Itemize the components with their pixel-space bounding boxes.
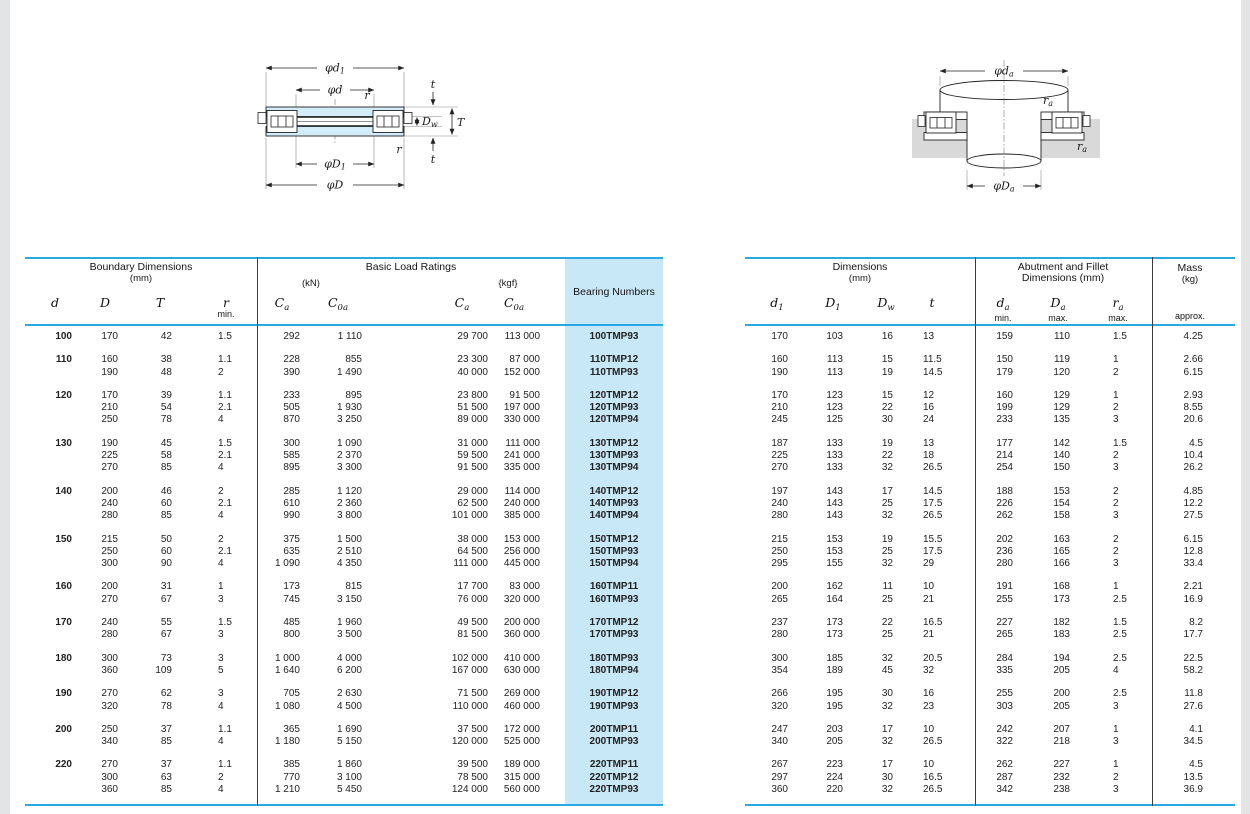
- table-cell: 236: [975, 546, 1015, 558]
- table-cell: 232: [1015, 772, 1072, 784]
- table-cell: 360: [745, 784, 790, 796]
- table-cell: 15.5: [895, 534, 975, 546]
- dim-label-t-top: t: [431, 78, 436, 91]
- table-cell: 143: [790, 498, 845, 510]
- table-cell: 91 500: [362, 462, 488, 474]
- table-group: 2371732216.52271821.58.22801732521265183…: [745, 617, 1235, 642]
- table-cell: 225: [75, 450, 120, 462]
- table-cell: 895: [300, 390, 362, 402]
- table-row: 1904823901 49040 000152 000110TMP93: [25, 367, 663, 379]
- table-cell: 4: [175, 414, 257, 426]
- table-cell: 4: [175, 736, 257, 748]
- table-row: 2371732216.52271821.58.2: [745, 617, 1235, 629]
- table-cell: 19: [845, 367, 895, 379]
- table-cell: 32: [845, 784, 895, 796]
- table-cell: 190TMP12: [540, 688, 663, 700]
- table-cell: 320: [745, 701, 790, 713]
- table-cell: 130TMP93: [540, 450, 663, 462]
- table-cell: 27.5: [1152, 510, 1235, 522]
- table-cell: 2: [1072, 367, 1152, 379]
- table-cell: 200: [75, 581, 120, 593]
- table-group: 120170391.123389523 80091 500120TMP12210…: [25, 390, 663, 427]
- table-cell: 170TMP93: [540, 629, 663, 641]
- table-cell: 2 510: [300, 546, 362, 558]
- table-cell: 4 350: [300, 558, 362, 570]
- table-cell: 18: [895, 450, 975, 462]
- table-cell: 218: [1015, 736, 1072, 748]
- table-cell: 154: [1015, 498, 1072, 510]
- table-cell: 385 000: [488, 510, 540, 522]
- table-cell: 705: [257, 688, 300, 700]
- table-cell: 100TMP93: [540, 331, 663, 343]
- table-cell: 2: [1072, 534, 1152, 546]
- table-cell: 4.5: [1152, 438, 1235, 450]
- table-cell: 245: [745, 414, 790, 426]
- table-cell: 183: [1015, 629, 1072, 641]
- table-cell: 800: [257, 629, 300, 641]
- table-cell: 150TMP94: [540, 558, 663, 570]
- table-cell: 330 000: [488, 414, 540, 426]
- table-cell: [25, 701, 75, 713]
- table-cell: 155: [790, 558, 845, 570]
- table-cell: 160: [745, 354, 790, 366]
- table-cell: 3: [175, 688, 257, 700]
- table-cell: 78 500: [362, 772, 488, 784]
- table-cell: 340: [745, 736, 790, 748]
- table-cell: 23 800: [362, 390, 488, 402]
- table-cell: 29: [895, 558, 975, 570]
- table-cell: 32: [845, 653, 895, 665]
- table-cell: 200: [1015, 688, 1072, 700]
- table-cell: 71 500: [362, 688, 488, 700]
- table-cell: 190: [75, 438, 120, 450]
- table-cell: 124 000: [362, 784, 488, 796]
- table-group: 26619530162552002.511.832019532233032053…: [745, 688, 1235, 713]
- table-cell: 120: [1015, 367, 1072, 379]
- table-row: 1901131914.517912026.15: [745, 367, 1235, 379]
- abutment-header-line2: Dimensions (mm): [1022, 273, 1104, 284]
- table-group: 1502155023751 50038 000153 000150TMP1225…: [25, 534, 663, 571]
- table-cell: 295: [745, 558, 790, 570]
- table-cell: 130TMP94: [540, 462, 663, 474]
- table-cell: 215: [745, 534, 790, 546]
- table-cell: 4: [175, 784, 257, 796]
- table-cell: 37: [120, 724, 175, 736]
- table-cell: 233: [257, 390, 300, 402]
- table-cell: 85: [120, 462, 175, 474]
- table-cell: 4.1: [1152, 724, 1235, 736]
- table-cell: 173: [790, 629, 845, 641]
- table-cell: 170TMP12: [540, 617, 663, 629]
- table-row: 3541894532335205458.2: [745, 665, 1235, 677]
- table-cell: 120TMP94: [540, 414, 663, 426]
- dimensions-header: Dimensions: [833, 262, 888, 273]
- table-cell: 143: [790, 510, 845, 522]
- table-cell: 227: [1015, 759, 1072, 771]
- table-cell: 103: [790, 331, 845, 343]
- table-row: 3001853220.52841942.522.5: [745, 653, 1235, 665]
- table-cell: 20.6: [1152, 414, 1235, 426]
- table-cell: 335: [975, 665, 1015, 677]
- table-group: 2151531915.520216326.152501532517.523616…: [745, 534, 1235, 571]
- table-cell: 3 800: [300, 510, 362, 522]
- table-cell: 59 500: [362, 450, 488, 462]
- table-row: 110160381.122885523 30087 000110TMP12: [25, 354, 663, 366]
- table-cell: 3: [1072, 736, 1152, 748]
- table-cell: 30: [845, 414, 895, 426]
- table-cell: 1.5: [175, 438, 257, 450]
- right-table-body: 17010316131591101.54.251601131511.515011…: [745, 331, 1235, 796]
- dim-label-Dw: Dw: [421, 115, 438, 129]
- table-cell: 37 500: [362, 724, 488, 736]
- table-cell: 12.8: [1152, 546, 1235, 558]
- table-cell: 101 000: [362, 510, 488, 522]
- table-row: 250602.16352 51064 500256 000150TMP93: [25, 546, 663, 558]
- table-cell: 2 630: [300, 688, 362, 700]
- table-cell: [25, 498, 75, 510]
- table-cell: 233: [975, 414, 1015, 426]
- table-cell: 19: [845, 534, 895, 546]
- table-cell: 6 200: [300, 665, 362, 677]
- table-cell: 16: [895, 402, 975, 414]
- table-cell: 4: [175, 558, 257, 570]
- table-cell: 33.4: [1152, 558, 1235, 570]
- table-cell: 4 000: [300, 653, 362, 665]
- table-cell: [25, 546, 75, 558]
- table-cell: 300: [75, 558, 120, 570]
- table-cell: 150: [975, 354, 1015, 366]
- table-group: 18713319131771421.54.5225133221821414021…: [745, 438, 1235, 475]
- table-cell: 375: [257, 534, 300, 546]
- table-cell: 110TMP93: [540, 367, 663, 379]
- table-cell: 770: [257, 772, 300, 784]
- table-cell: 256 000: [488, 546, 540, 558]
- table-cell: 1 860: [300, 759, 362, 771]
- table-row: 200250371.13651 69037 500172 000200TMP11: [25, 724, 663, 736]
- table-cell: 76 000: [362, 594, 488, 606]
- table-cell: 153 000: [488, 534, 540, 546]
- table-cell: 15: [845, 354, 895, 366]
- table-cell: 189: [790, 665, 845, 677]
- table-cell: 2 370: [300, 450, 362, 462]
- table-row: 2806738003 50081 500360 000170TMP93: [25, 629, 663, 641]
- table-cell: 200: [745, 581, 790, 593]
- table-row: 18713319131771421.54.5: [745, 438, 1235, 450]
- table-cell: 91 500: [488, 390, 540, 402]
- table-cell: 54: [120, 402, 175, 414]
- table-cell: 87 000: [488, 354, 540, 366]
- table-cell: 34.5: [1152, 736, 1235, 748]
- table-cell: 3: [1072, 510, 1152, 522]
- table-cell: 280: [75, 629, 120, 641]
- col-symbol-C0a-kn: C0a: [328, 297, 348, 314]
- col-symbol-T: T: [156, 297, 164, 310]
- col-symbol-Ca-kgf: Ca: [455, 297, 470, 314]
- table-cell: 120 000: [362, 736, 488, 748]
- table-cell: 4: [1072, 665, 1152, 677]
- table-cell: 32: [845, 736, 895, 748]
- table-cell: 130TMP12: [540, 438, 663, 450]
- right-table-bottom-rule: [745, 804, 1235, 806]
- table-cell: 85: [120, 736, 175, 748]
- table-cell: [25, 510, 75, 522]
- left-table-top-rule: [25, 257, 663, 259]
- table-cell: 142: [1015, 438, 1072, 450]
- table-cell: 31: [120, 581, 175, 593]
- table-cell: 250: [745, 546, 790, 558]
- table-row: 1502155023751 50038 000153 000150TMP12: [25, 534, 663, 546]
- table-group: 170240551.54851 96049 500200 000170TMP12…: [25, 617, 663, 642]
- table-cell: 2 360: [300, 498, 362, 510]
- col-symbol-da-min: damin.: [994, 297, 1011, 324]
- table-cell: 270: [75, 462, 120, 474]
- table-cell: 14.5: [895, 367, 975, 379]
- table-cell: 162: [790, 581, 845, 593]
- table-cell: 3 500: [300, 629, 362, 641]
- table-cell: [25, 558, 75, 570]
- table-cell: 20.5: [895, 653, 975, 665]
- table-cell: 170: [25, 617, 75, 629]
- table-row: 2451253024233135320.6: [745, 414, 1235, 426]
- table-cell: 85: [120, 784, 175, 796]
- table-cell: 16: [845, 331, 895, 343]
- table-cell: 100: [25, 331, 75, 343]
- table-cell: 354: [745, 665, 790, 677]
- table-cell: 360: [75, 665, 120, 677]
- table-cell: 1.5: [1072, 331, 1152, 343]
- table-cell: 1: [1072, 724, 1152, 736]
- table-cell: 140: [1015, 450, 1072, 462]
- table-cell: 185: [790, 653, 845, 665]
- table-row: 3006327703 10078 500315 000220TMP12: [25, 772, 663, 784]
- table-cell: 16.5: [895, 772, 975, 784]
- table-cell: [25, 402, 75, 414]
- table-row: 200162111019116812.21: [745, 581, 1235, 593]
- table-row: 210123221619912928.55: [745, 402, 1235, 414]
- table-cell: 3 250: [300, 414, 362, 426]
- col-symbol-Da-max: Damax.: [1048, 297, 1068, 324]
- table-cell: 153: [790, 534, 845, 546]
- table-row: 2951553229280166333.4: [745, 558, 1235, 570]
- table-cell: 6.15: [1152, 367, 1235, 379]
- table-cell: 3 300: [300, 462, 362, 474]
- table-cell: 270: [745, 462, 790, 474]
- table-cell: 445 000: [488, 558, 540, 570]
- table-group: 16020031117381517 70083 000160TMP1127067…: [25, 581, 663, 606]
- table-cell: 168: [1015, 581, 1072, 593]
- dim-label-r-bottom: r: [396, 143, 402, 156]
- table-cell: 200TMP93: [540, 736, 663, 748]
- table-cell: 17.5: [895, 498, 975, 510]
- table-cell: [25, 594, 75, 606]
- bearing-numbers-header: Bearing Numbers: [573, 287, 655, 298]
- table-cell: 254: [975, 462, 1015, 474]
- table-cell: 280: [75, 510, 120, 522]
- table-cell: 223: [790, 759, 845, 771]
- table-row: 3608541 2105 450124 000560 000220TMP93: [25, 784, 663, 796]
- table-cell: 4 500: [300, 701, 362, 713]
- table-row: 170123151216012912.93: [745, 390, 1235, 402]
- table-cell: 170: [75, 390, 120, 402]
- col-symbol-d1: d1: [770, 297, 783, 314]
- table-cell: 990: [257, 510, 300, 522]
- table-cell: 1 110: [300, 331, 362, 343]
- dim-label-phi-Da: φDa: [993, 180, 1015, 194]
- table-cell: 1 960: [300, 617, 362, 629]
- table-row: 2151531915.520216326.15: [745, 534, 1235, 546]
- table-cell: 1 000: [257, 653, 300, 665]
- table-cell: 38: [120, 354, 175, 366]
- table-cell: 167 000: [362, 665, 488, 677]
- table-cell: 111 000: [488, 438, 540, 450]
- table-row: 28017325212651832.517.7: [745, 629, 1235, 641]
- table-row: 3201953223303205327.6: [745, 701, 1235, 713]
- table-cell: 205: [1015, 701, 1072, 713]
- table-cell: 250: [75, 724, 120, 736]
- table-cell: 4.85: [1152, 486, 1235, 498]
- table-cell: 255: [975, 594, 1015, 606]
- mass-unit: (kg): [1182, 274, 1198, 285]
- table-cell: 1.1: [175, 759, 257, 771]
- table-cell: 180TMP93: [540, 653, 663, 665]
- table-cell: 5: [175, 665, 257, 677]
- dim-label-phi-d: φd: [328, 84, 343, 97]
- table-cell: 26.5: [895, 736, 975, 748]
- table-cell: 191: [975, 581, 1015, 593]
- table-cell: 2.5: [1072, 594, 1152, 606]
- table-cell: 150TMP93: [540, 546, 663, 558]
- table-cell: 1.1: [175, 390, 257, 402]
- table-cell: 140TMP12: [540, 486, 663, 498]
- table-cell: 202: [975, 534, 1015, 546]
- table-cell: 224: [790, 772, 845, 784]
- table-cell: 300: [75, 653, 120, 665]
- table-cell: 179: [975, 367, 1015, 379]
- table-cell: 287: [975, 772, 1015, 784]
- table-cell: 4: [175, 701, 257, 713]
- table-cell: 220TMP12: [540, 772, 663, 784]
- table-cell: 11.8: [1152, 688, 1235, 700]
- table-cell: 123: [790, 390, 845, 402]
- table-cell: 1: [1072, 581, 1152, 593]
- table-cell: 300: [745, 653, 790, 665]
- table-cell: [25, 450, 75, 462]
- table-cell: 19: [845, 438, 895, 450]
- table-cell: 190: [25, 688, 75, 700]
- table-cell: 120: [25, 390, 75, 402]
- table-cell: 22: [845, 450, 895, 462]
- table-cell: 188: [975, 486, 1015, 498]
- table-cell: 110 000: [362, 701, 488, 713]
- table-row: 2972243016.5287232213.5: [745, 772, 1235, 784]
- table-cell: 110: [25, 354, 75, 366]
- table-cell: 322: [975, 736, 1015, 748]
- table-group: 110160381.122885523 30087 000110TMP12190…: [25, 354, 663, 379]
- table-cell: 1.5: [175, 331, 257, 343]
- table-cell: 125: [790, 414, 845, 426]
- table-cell: 855: [300, 354, 362, 366]
- table-cell: 152 000: [488, 367, 540, 379]
- table-group: 130190451.53001 09031 000111 000130TMP12…: [25, 438, 663, 475]
- table-cell: 160TMP11: [540, 581, 663, 593]
- table-cell: 26.5: [895, 784, 975, 796]
- left-table-body: 100170421.52921 11029 700113 000100TMP93…: [25, 331, 663, 796]
- table-cell: 200 000: [488, 617, 540, 629]
- table-cell: 90: [120, 558, 175, 570]
- table-cell: 140TMP94: [540, 510, 663, 522]
- table-cell: 210: [75, 402, 120, 414]
- table-cell: 220: [25, 759, 75, 771]
- table-cell: 267: [745, 759, 790, 771]
- table-cell: 26.5: [895, 462, 975, 474]
- table-cell: 22.5: [1152, 653, 1235, 665]
- dimensions-unit: (mm): [849, 273, 871, 284]
- table-group: 1601131511.515011912.661901131914.517912…: [745, 354, 1235, 379]
- table-cell: 365: [257, 724, 300, 736]
- table-group: 100170421.52921 11029 700113 000100TMP93: [25, 331, 663, 343]
- table-cell: 73: [120, 653, 175, 665]
- table-cell: 32: [895, 665, 975, 677]
- table-cell: 165: [1015, 546, 1072, 558]
- table-cell: 160: [25, 581, 75, 593]
- table-cell: 525 000: [488, 736, 540, 748]
- table-cell: 17: [845, 759, 895, 771]
- table-cell: 1 690: [300, 724, 362, 736]
- table-cell: 140: [25, 486, 75, 498]
- table-row: 17010316131591101.54.25: [745, 331, 1235, 343]
- table-cell: 51 500: [362, 402, 488, 414]
- table-group: 220270371.13851 86039 500189 000220TMP11…: [25, 759, 663, 796]
- table-cell: 2.5: [1072, 629, 1152, 641]
- table-cell: 21: [895, 629, 975, 641]
- mass-header: Mass: [1177, 263, 1202, 274]
- table-cell: 60: [120, 546, 175, 558]
- table-cell: 1.1: [175, 724, 257, 736]
- table-cell: 2: [175, 486, 257, 498]
- table-group: 1902706237052 63071 500269 000190TMP1232…: [25, 688, 663, 713]
- table-cell: 228: [257, 354, 300, 366]
- table-cell: 3: [175, 653, 257, 665]
- table-cell: 189 000: [488, 759, 540, 771]
- table-cell: 4.25: [1152, 331, 1235, 343]
- dim-label-t-bottom: t: [431, 153, 436, 166]
- table-cell: 38 000: [362, 534, 488, 546]
- table-cell: 113 000: [488, 331, 540, 343]
- table-cell: 85: [120, 510, 175, 522]
- table-cell: 190TMP93: [540, 701, 663, 713]
- dim-label-phi-da: φda: [994, 65, 1014, 79]
- table-cell: 1 090: [300, 438, 362, 450]
- table-cell: 2: [175, 367, 257, 379]
- table-cell: 177: [975, 438, 1015, 450]
- table-cell: 1: [175, 581, 257, 593]
- table-cell: 240: [75, 617, 120, 629]
- table-cell: [25, 772, 75, 784]
- table-cell: 1 210: [257, 784, 300, 796]
- table-group: 1402004622851 12029 000114 000140TMP1224…: [25, 486, 663, 523]
- table-cell: 2: [1072, 486, 1152, 498]
- table-cell: 1.5: [1072, 617, 1152, 629]
- table-cell: 8.55: [1152, 402, 1235, 414]
- table-cell: 45: [120, 438, 175, 450]
- table-cell: 227: [975, 617, 1015, 629]
- table-cell: 241 000: [488, 450, 540, 462]
- table-cell: 27.6: [1152, 701, 1235, 713]
- table-cell: 2.1: [175, 450, 257, 462]
- table-row: 100170421.52921 11029 700113 000100TMP93: [25, 331, 663, 343]
- table-cell: 29 700: [362, 331, 488, 343]
- table-row: 36010951 6406 200167 000630 000180TMP94: [25, 665, 663, 677]
